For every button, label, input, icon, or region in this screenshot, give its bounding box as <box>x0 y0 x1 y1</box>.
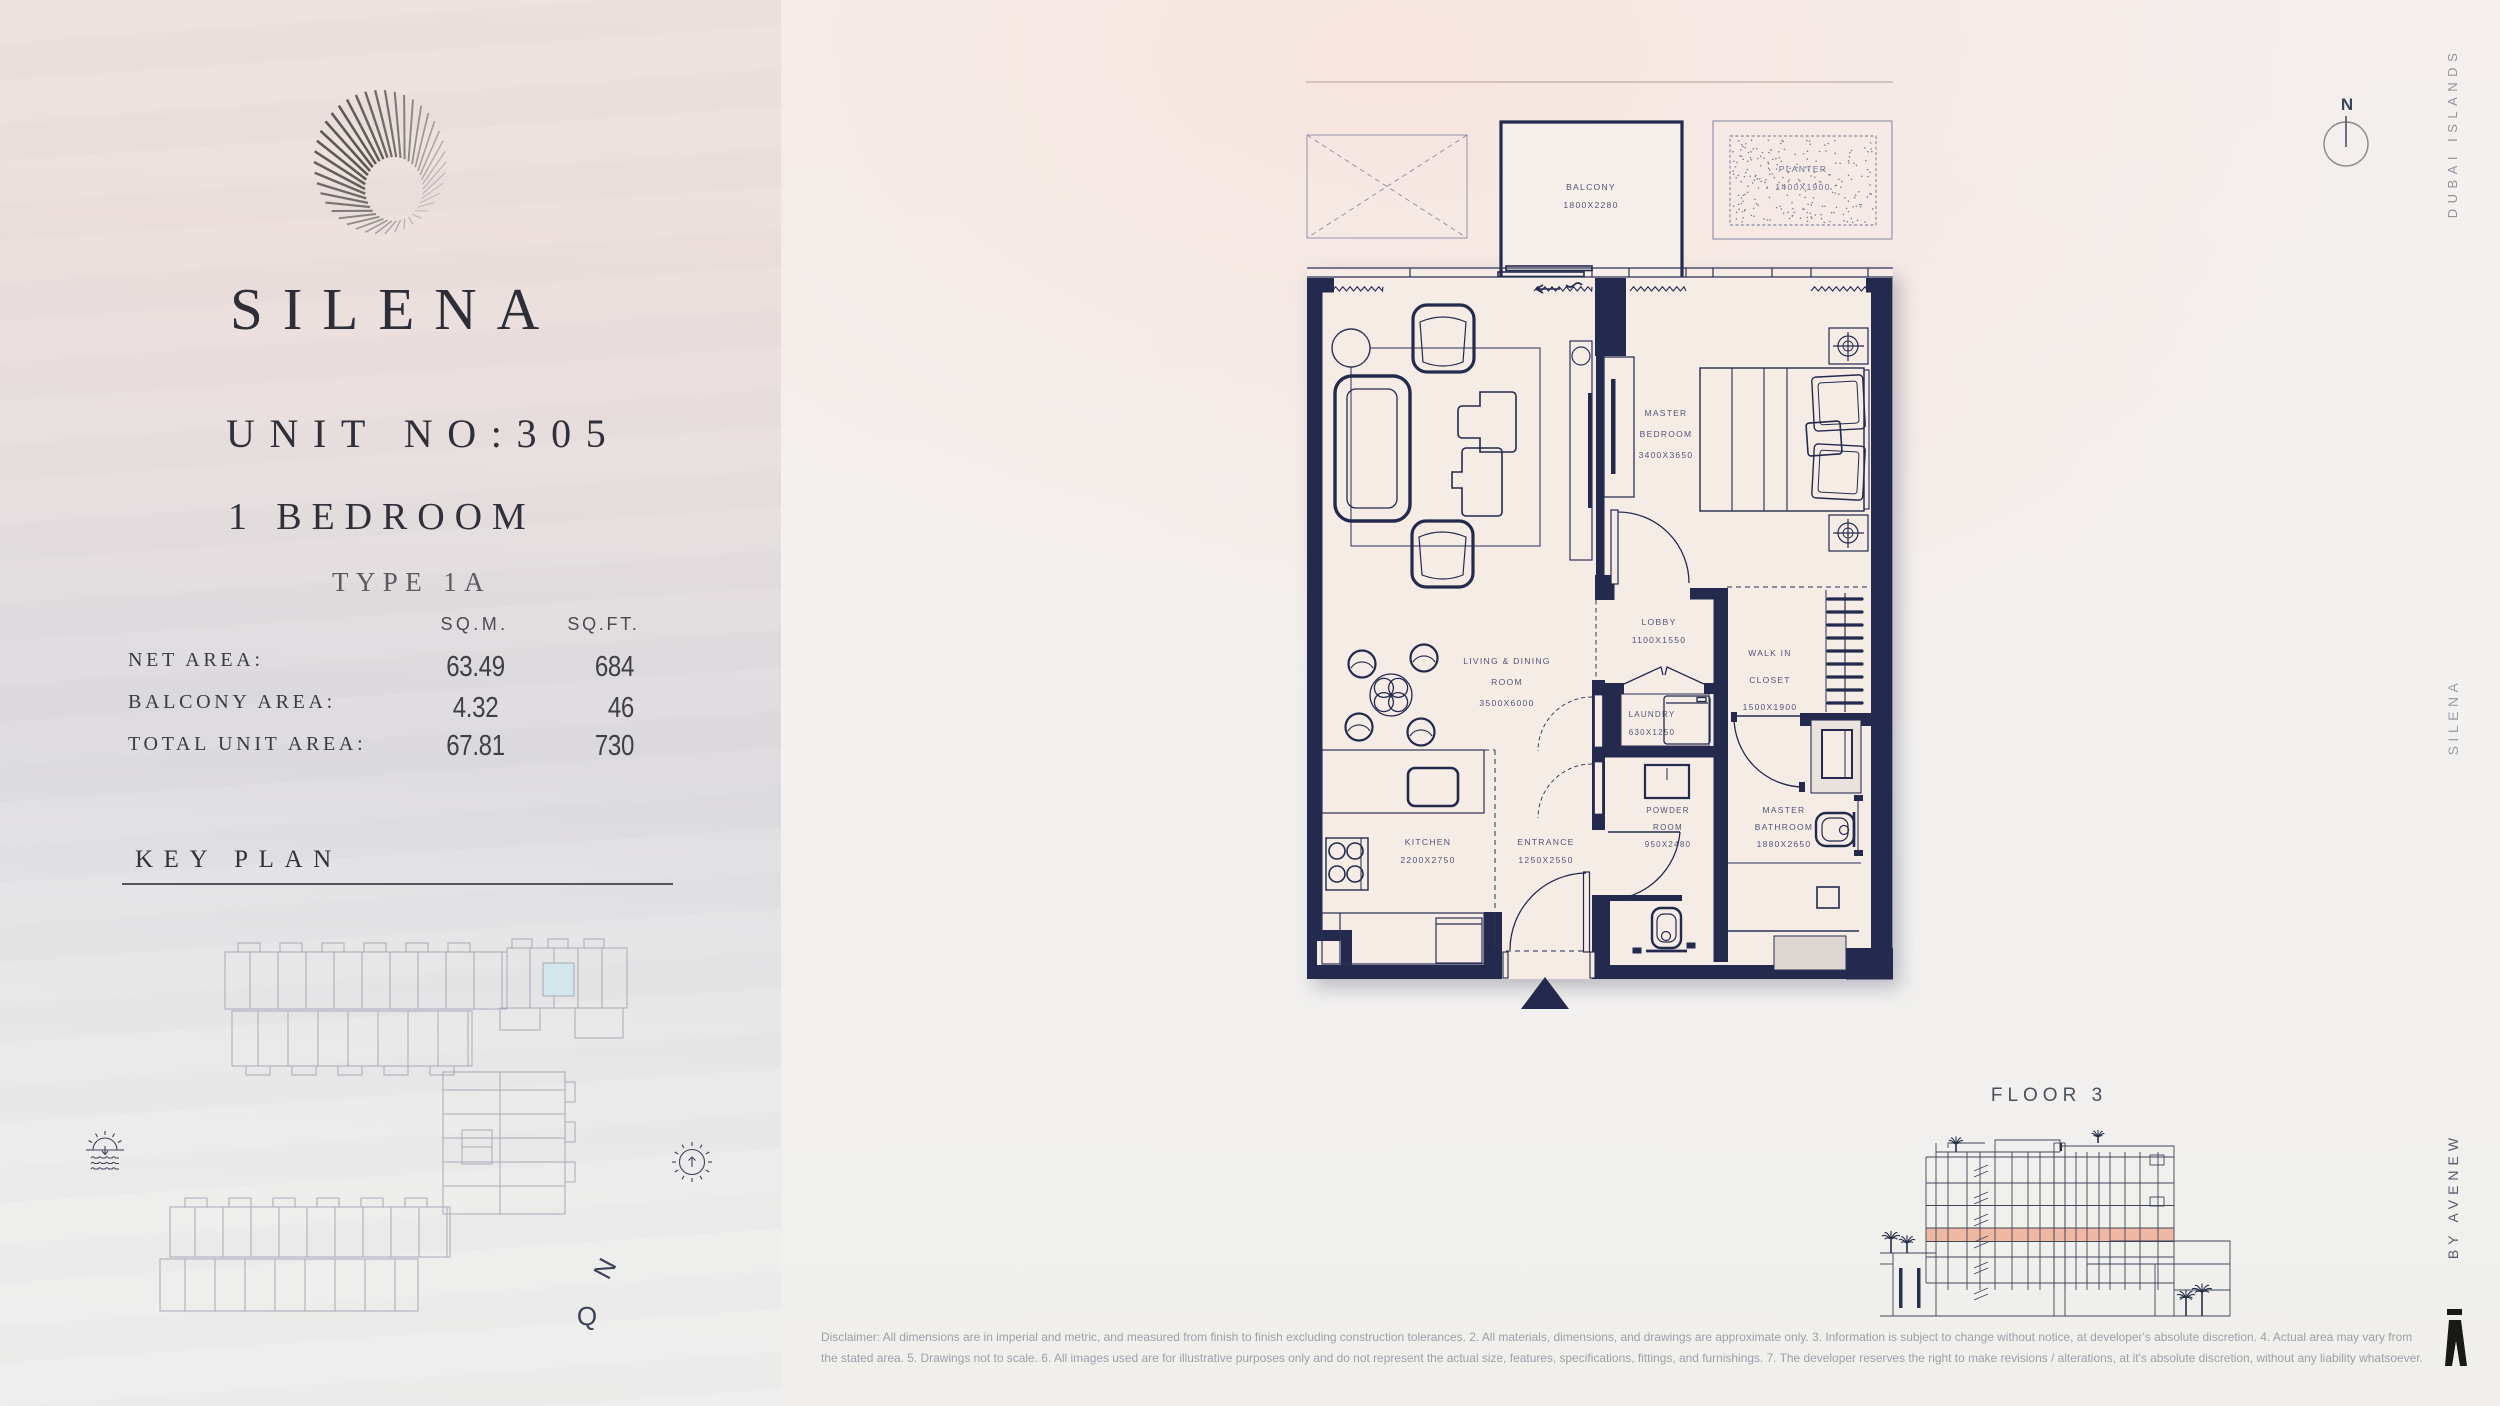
svg-text:the stated area. 5. Drawings n: the stated area. 5. Drawings not to scal… <box>821 1351 2423 1365</box>
svg-text:KITCHEN: KITCHEN <box>1405 837 1451 847</box>
svg-text:MASTER: MASTER <box>1645 408 1688 418</box>
svg-text:Q: Q <box>577 1301 597 1331</box>
svg-text:ENTRANCE: ENTRANCE <box>1517 837 1574 847</box>
svg-text:LAUNDRY: LAUNDRY <box>1629 710 1676 719</box>
svg-text:950X2480: 950X2480 <box>1645 840 1691 849</box>
svg-text:1800X2280: 1800X2280 <box>1563 200 1618 210</box>
svg-text:POWDER: POWDER <box>1646 806 1690 815</box>
svg-text:CLOSET: CLOSET <box>1749 675 1791 685</box>
svg-text:MASTER: MASTER <box>1763 805 1806 815</box>
svg-text:FLOOR 3: FLOOR 3 <box>1991 1085 2107 1106</box>
svg-text:3500X6000: 3500X6000 <box>1479 698 1534 708</box>
svg-text:1880X2650: 1880X2650 <box>1757 839 1812 849</box>
svg-text:BEDROOM: BEDROOM <box>1640 429 1693 439</box>
svg-text:630X1250: 630X1250 <box>1629 728 1675 737</box>
svg-text:1250X2550: 1250X2550 <box>1518 855 1573 865</box>
svg-text:2200X2750: 2200X2750 <box>1400 855 1455 865</box>
svg-text:LIVING & DINING: LIVING & DINING <box>1463 656 1551 666</box>
svg-text:1400X1900: 1400X1900 <box>1775 182 1830 192</box>
svg-text:BY AVENEW: BY AVENEW <box>2445 1133 2461 1259</box>
svg-text:SILENA: SILENA <box>2445 679 2461 756</box>
svg-text:BATHROOM: BATHROOM <box>1755 822 1813 832</box>
svg-text:N: N <box>587 1253 622 1284</box>
svg-text:DUBAI ISLANDS: DUBAI ISLANDS <box>2445 48 2460 218</box>
svg-text:1500X1900: 1500X1900 <box>1743 702 1798 712</box>
svg-text:1100X1550: 1100X1550 <box>1632 635 1687 645</box>
svg-text:N: N <box>2341 95 2353 114</box>
svg-text:PLANTER: PLANTER <box>1779 164 1827 174</box>
svg-text:WALK IN: WALK IN <box>1748 648 1791 658</box>
svg-text:ROOM: ROOM <box>1491 677 1523 687</box>
svg-text:BALCONY: BALCONY <box>1566 182 1616 192</box>
svg-text:ROOM: ROOM <box>1653 823 1683 832</box>
svg-text:LOBBY: LOBBY <box>1642 617 1677 627</box>
svg-text:Disclaimer: All dimensions are: Disclaimer: All dimensions are in imperi… <box>821 1330 2412 1344</box>
svg-text:3400X3650: 3400X3650 <box>1639 450 1694 460</box>
